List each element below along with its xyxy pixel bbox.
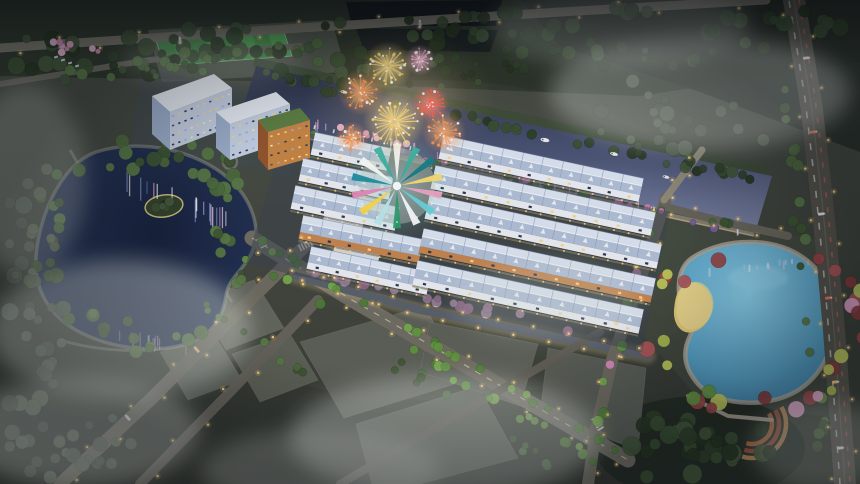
scene-svg xyxy=(0,0,860,484)
rendering-stage xyxy=(0,0,860,484)
vignette xyxy=(0,0,860,484)
